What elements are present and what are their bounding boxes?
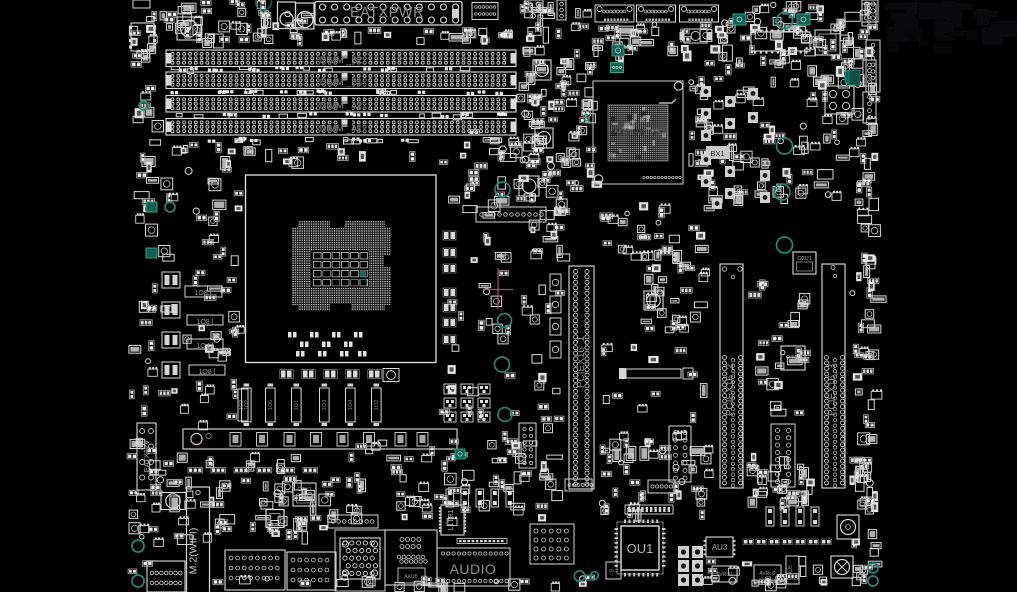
- svg-text:OU2: OU2: [609, 568, 619, 573]
- svg-text:1O4: 1O4: [348, 400, 354, 410]
- svg-text:1O4 [: 1O4 [: [196, 343, 213, 350]
- svg-text:AVRU1: AVRU1: [716, 572, 733, 578]
- svg-text:O4U1: O4U1: [786, 355, 800, 361]
- svg-text:AAUB: AAUB: [404, 574, 418, 580]
- svg-text:M.2(WIFI): M.2(WIFI): [188, 528, 200, 575]
- svg-text:PCIEX16_1: PCIEX16_1: [576, 335, 587, 388]
- svg-text:1O2: 1O2: [374, 400, 380, 410]
- svg-text:EATXPWR: EATXPWR: [350, 5, 424, 21]
- svg-text:DIMM _A1: DIMM _A1: [320, 123, 363, 133]
- svg-text:DIMM _A2: DIMM _A2: [320, 100, 363, 110]
- svg-text:1O8 [: 1O8 [: [194, 290, 211, 297]
- svg-text:1O5: 1O5: [268, 400, 274, 410]
- svg-text:O2U1: O2U1: [797, 256, 811, 262]
- svg-text:1O3: 1O3: [322, 400, 328, 410]
- svg-text:1O8 [: 1O8 [: [198, 369, 215, 376]
- svg-text:BX1: BX1: [710, 149, 724, 158]
- svg-text:HATSUNE TEH: HATSUNE TEH: [609, 128, 665, 137]
- svg-text:PCIEX16_3: PCIEX16_3: [827, 363, 838, 416]
- svg-text:1O2: 1O2: [244, 400, 250, 410]
- svg-text:L1TR1: L1TR1: [448, 509, 455, 530]
- svg-text:DIMM _B2: DIMM _B2: [320, 55, 363, 65]
- svg-text:1O1: 1O1: [294, 400, 300, 410]
- svg-text:EATX12V: EATX12V: [142, 440, 151, 472]
- svg-text:OU1: OU1: [627, 541, 654, 556]
- svg-text:O7U1: O7U1: [297, 487, 311, 493]
- svg-text:AVRU2: AVRU2: [759, 571, 776, 577]
- svg-text:AUDIO: AUDIO: [450, 561, 497, 577]
- svg-text:AU5: AU5: [788, 565, 794, 575]
- svg-text:PCIEX16_2: PCIEX16_2: [725, 363, 736, 416]
- svg-text:1O8 [: 1O8 [: [196, 319, 213, 326]
- svg-text:DIMM _B1: DIMM _B1: [320, 77, 363, 87]
- svg-text:AU3: AU3: [712, 543, 728, 552]
